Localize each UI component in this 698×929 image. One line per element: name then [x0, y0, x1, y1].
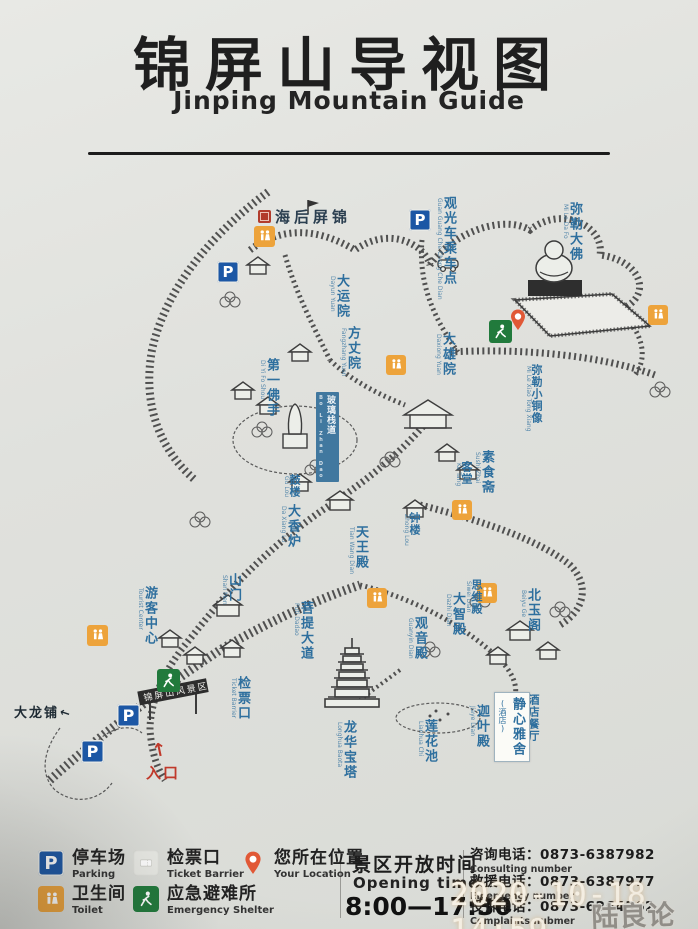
map-label-glass-walkway: 玻璃栈道Bo Li Zhan Dao — [316, 392, 339, 482]
map-label-lotus-pond: 莲花池Lianhua Chi — [417, 719, 436, 764]
location-pin-icon — [240, 850, 266, 876]
map-label-guanyin-hall: 观音殿Guanyin Dian — [407, 616, 426, 661]
map-label-tourist-center: 游客中心Tourist Center — [137, 586, 156, 646]
opening-time-title: 景区开放时间 — [352, 850, 478, 877]
legend-item-parking: P 停车场Parking — [38, 850, 126, 880]
map-label-fangzhang-yuan: 方丈院Fangzhang Yuan — [340, 326, 359, 377]
parking-icon: P — [409, 209, 431, 231]
houhai-text: 锦屏后海 — [275, 206, 351, 227]
map-sign-photo: 锦屏山导视图 Jinping Mountain Guide — [0, 0, 698, 929]
legend-item-emergency-shelter: 应急避难所Emergency Shelter — [133, 886, 274, 916]
title-divider — [88, 152, 610, 155]
contact-consulting: 咨询电话：0873-6387982 Consulting number — [470, 849, 655, 874]
map-label-drum-tower: 鼓楼Gu Lou — [283, 474, 300, 498]
legend-item-ticket-barrier: 检票口Ticket Barrier — [133, 850, 244, 880]
page-subtitle: Jinping Mountain Guide — [0, 86, 698, 115]
tree-glyphs — [190, 292, 670, 657]
emergency-shelter-icon — [157, 669, 180, 692]
map-label-maitreya-buddha: 弥勒大佛Mi Le Da Fo — [562, 202, 581, 262]
toilet-icon — [386, 355, 406, 375]
pagoda-drawing — [325, 638, 379, 707]
map-label-tianwang-hall: 天王殿Tian Wang Dian — [348, 525, 367, 574]
map-label-bodhi-avenue: 菩提大道Puti Dadao — [293, 601, 312, 661]
map-label-jiaye-hall: 迦叶殿Jiaye Dian — [469, 704, 488, 749]
map-label-first-buddha-hand: 第一佛手Di Yi Fo Shou — [259, 358, 278, 418]
legend-item-toilet: 卫生间Toilet — [38, 886, 126, 916]
map-label-siwei-hall: 思维殿Siwei Dian — [465, 579, 482, 615]
map-label-guest-hall: 客堂Ke Tang — [455, 461, 472, 486]
map-label-jingxin-yashe: 静心雅舍(酒店) — [494, 692, 530, 762]
map-label-sightseeing-car-stop: 观光车乘车点Guan Guang Che Cheng Che Dian — [436, 196, 455, 300]
ticket-icon — [133, 850, 159, 876]
houhai-calligraphy: 锦屏后海 — [258, 206, 351, 227]
map-label-longhua-pagoda: 龙华宝塔Longhua Baota — [336, 720, 355, 780]
toilet-icon — [367, 588, 387, 608]
direction-arrow-icon: ← — [58, 704, 74, 721]
map-label-dayun-yuan: 大运院Dayun Yuan — [329, 274, 348, 319]
map-label-dazhi-hall: 大智殿Dazhi Dian — [445, 592, 464, 637]
toilet-icon — [452, 500, 472, 520]
map-label-mountain-gate: 山门Shan Men — [221, 573, 240, 605]
map-label-incense-burner: 大香炉Da Xiang Lu — [280, 504, 299, 549]
map-label-daxiong-yuan: 大雄院Daxiong Yuan — [435, 332, 454, 377]
forum-watermark: 陆良论坛 — [591, 892, 698, 929]
toilet-icon — [38, 886, 64, 912]
seal-stamp-icon — [258, 210, 271, 223]
map-label-beiyu-pavilion: 北玉阁Beiyu Ge — [520, 588, 539, 633]
map-label-vegetarian-hall: 素食斋Sushi Zhai — [474, 450, 493, 495]
parking-icon: P — [38, 850, 64, 876]
toilet-icon — [87, 625, 108, 646]
parking-icon: P — [117, 704, 140, 727]
legend-item-your-location: 您所在位置Your Location — [240, 850, 364, 880]
map-label-ticket-barrier: 检票口Ticket Barrier — [230, 676, 249, 721]
location-pin-icon — [508, 308, 528, 332]
map-label-bell-tower: 钟楼Zhong Lou — [403, 512, 420, 546]
toilet-icon — [648, 305, 668, 325]
map-label-small-bronze-statue: 弥勒小铜像Mi Le Xiao Tong Xiang — [525, 364, 542, 432]
parking-icon: P — [81, 740, 104, 763]
toilet-icon — [254, 226, 275, 247]
buddha-hand-drawing — [283, 404, 307, 448]
buddha-statue-drawing — [515, 241, 650, 336]
map-label-dalongpu: 大龙铺← — [14, 702, 72, 721]
emergency-shelter-icon — [133, 886, 159, 912]
parking-icon: P — [217, 261, 239, 283]
map-label-entrance: 入口 — [146, 762, 180, 783]
building-glyphs — [159, 257, 559, 664]
